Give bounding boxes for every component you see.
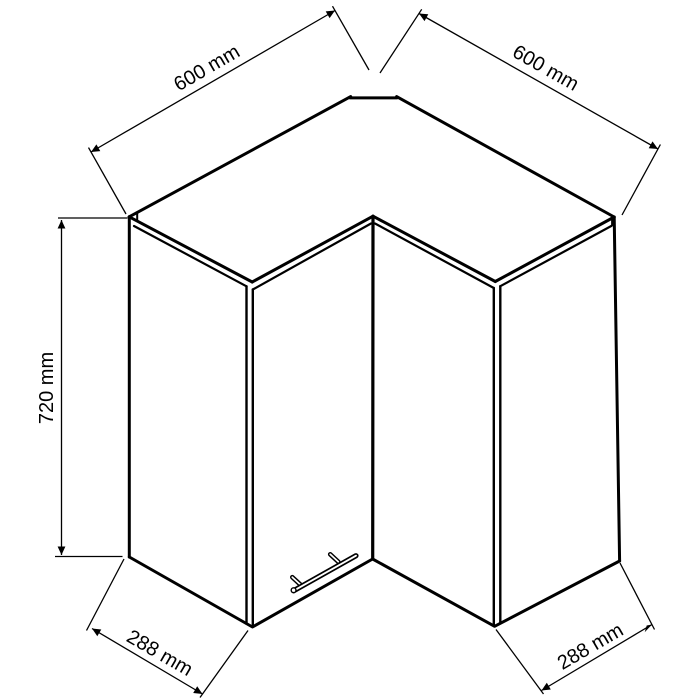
svg-text:720 mm: 720 mm bbox=[36, 352, 58, 424]
